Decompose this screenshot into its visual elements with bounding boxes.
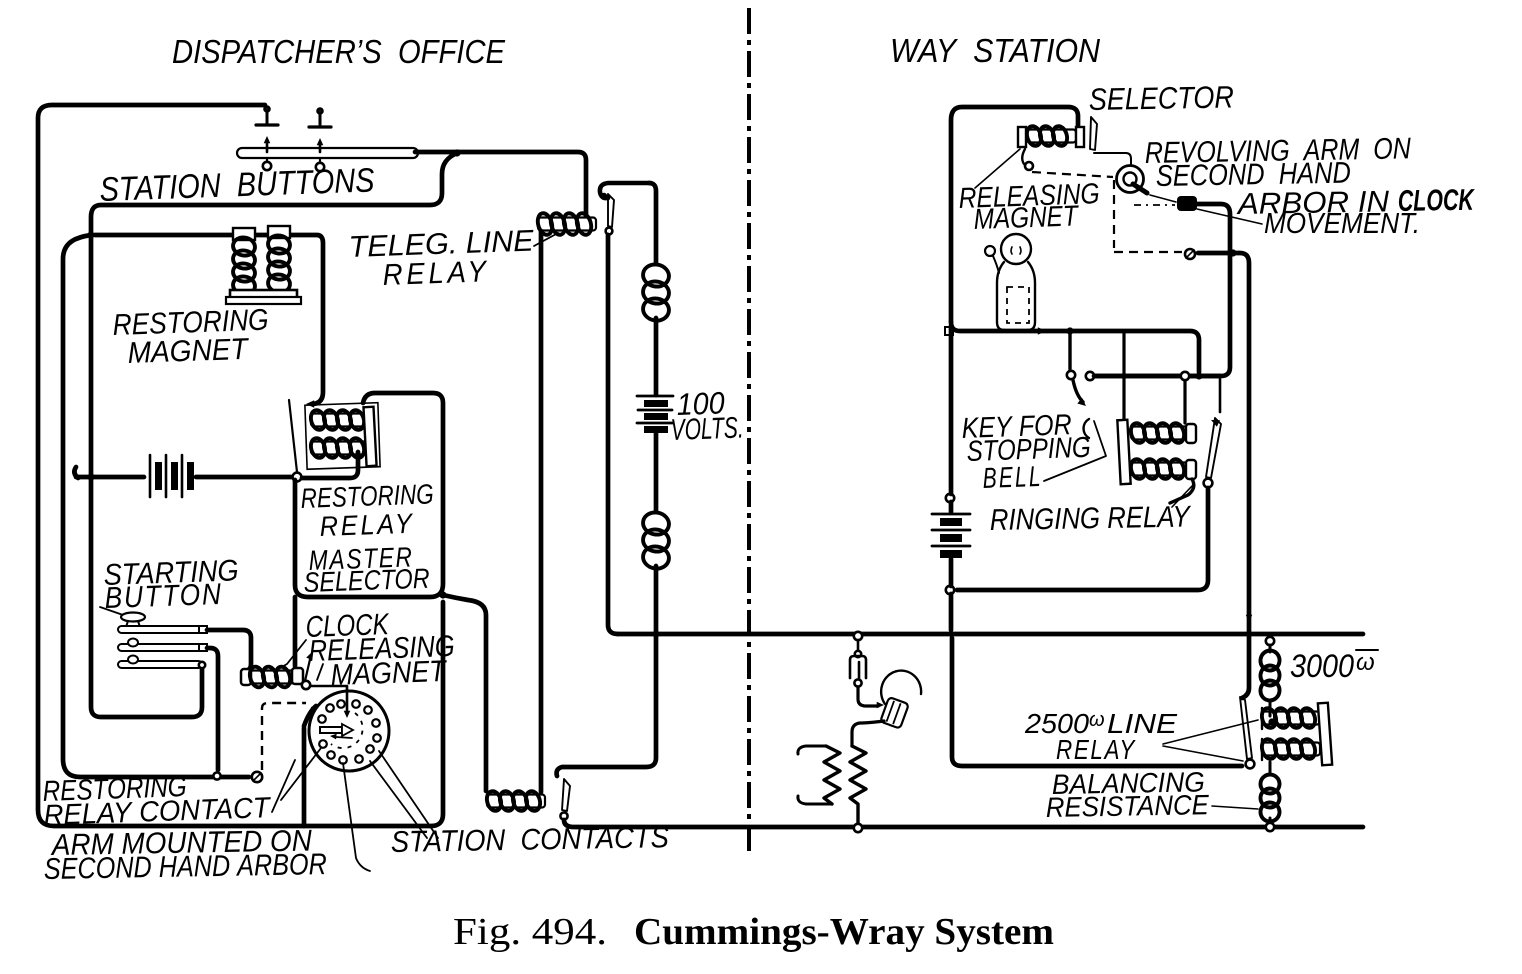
- svg-text:Cummings-Wray System: Cummings-Wray System: [634, 911, 1054, 953]
- svg-text:RINGING RELAY: RINGING RELAY: [990, 500, 1192, 537]
- svg-text:MOVEMENT.: MOVEMENT.: [1264, 208, 1420, 240]
- svg-text:ω: ω: [1356, 649, 1375, 676]
- svg-text:BELL: BELL: [982, 461, 1043, 495]
- svg-text:RELAY: RELAY: [319, 508, 415, 542]
- svg-text:BUTTON: BUTTON: [104, 578, 223, 615]
- svg-text:SELECTOR: SELECTOR: [1089, 79, 1235, 117]
- svg-text:SECOND HAND ARBOR: SECOND HAND ARBOR: [44, 848, 328, 886]
- svg-text:VOLTS.: VOLTS.: [670, 411, 744, 447]
- svg-text:RELAY: RELAY: [382, 255, 490, 292]
- svg-text:MAGNET: MAGNET: [127, 333, 251, 370]
- svg-text:RESISTANCE: RESISTANCE: [1046, 789, 1210, 823]
- svg-text:Fig. 494.: Fig. 494.: [453, 911, 607, 953]
- svg-text:SELECTOR: SELECTOR: [303, 563, 430, 598]
- svg-text:ω: ω: [1089, 709, 1105, 731]
- svg-text:3000: 3000: [1290, 648, 1354, 684]
- svg-text:DISPATCHER’S OFFICE: DISPATCHER’S OFFICE: [172, 33, 506, 70]
- svg-text:WAY STATION: WAY STATION: [890, 32, 1100, 69]
- svg-text:MAGNET: MAGNET: [973, 200, 1080, 236]
- svg-text:RELAY: RELAY: [1056, 734, 1136, 765]
